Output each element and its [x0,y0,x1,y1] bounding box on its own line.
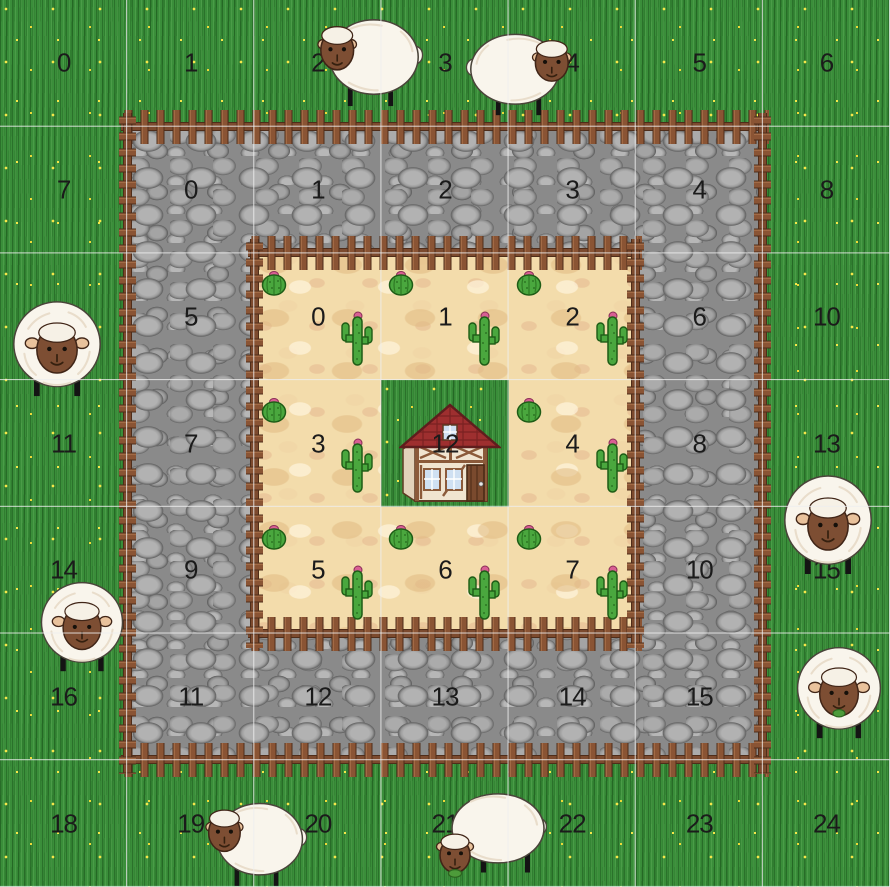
sheep-front-icon[interactable] [780,472,876,576]
pasture-grid-scene: 0123456789101112131415161718192021222324… [0,0,890,887]
sheep-side-icon[interactable] [316,12,424,108]
sheep-layer [0,0,890,887]
sheep-side-icon[interactable] [204,796,308,887]
sheep-front-icon[interactable] [793,644,885,740]
sheep-front-icon[interactable] [37,579,127,673]
sheep-side-icon[interactable] [465,27,573,117]
sheep-grazing-icon[interactable] [435,792,547,884]
sheep-front-icon[interactable] [9,298,105,398]
